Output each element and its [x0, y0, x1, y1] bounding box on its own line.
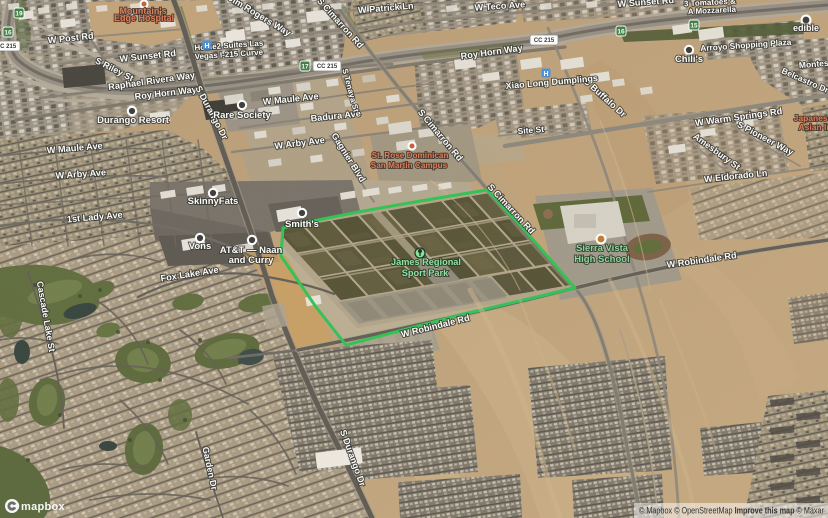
- svg-text:mapbox: mapbox: [21, 501, 66, 513]
- svg-text:© Mapbox © OpenStreetMap Impro: © Mapbox © OpenStreetMap Improve this ma…: [639, 506, 824, 517]
